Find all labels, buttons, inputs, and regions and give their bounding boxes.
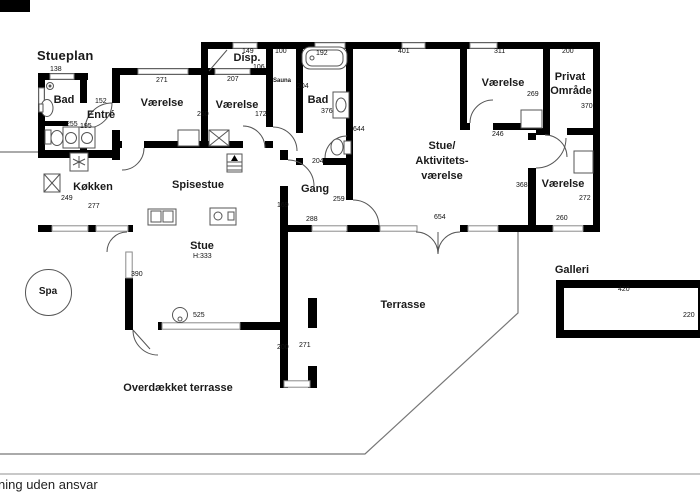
room-label-entre: Entré xyxy=(87,110,115,121)
room-label-stue: Stue xyxy=(190,241,214,252)
dim-label: 420 xyxy=(618,286,630,293)
dim-label: 149 xyxy=(242,48,254,55)
room-label-vaerelse-1: Værelse xyxy=(141,98,184,109)
room-label-terrasse: Terrasse xyxy=(380,300,425,311)
dim-label: 204 xyxy=(312,158,324,165)
dim-label: 259 xyxy=(333,196,345,203)
room-label-vaerelse-2: Værelse xyxy=(216,100,259,111)
dim-label: 106 xyxy=(253,64,265,71)
room-label-stueakt-line3: værelse xyxy=(421,171,463,182)
dim-label: 246 xyxy=(492,131,504,138)
dim-label: 138 xyxy=(50,66,62,73)
dim-label: 271 xyxy=(299,342,311,349)
dim-label: 390 xyxy=(131,271,143,278)
dim-label: 195 xyxy=(80,123,92,130)
dim-label: 272 xyxy=(579,195,591,202)
room-label-privat-line1: Privat xyxy=(555,72,586,83)
dim-label: 192 xyxy=(316,50,328,57)
room-label-koekken: Køkken xyxy=(73,182,113,193)
dim-label: 311 xyxy=(494,48,505,55)
wardrobe-icon xyxy=(209,130,229,146)
kitchen-sink-icon xyxy=(148,209,176,225)
dim-label: 288 xyxy=(306,216,318,223)
terrace-outline xyxy=(0,152,518,454)
corner-artifact xyxy=(0,0,30,12)
dim-label: 172 xyxy=(255,111,267,118)
dim-label: 169 xyxy=(277,202,289,209)
dim-label: 277 xyxy=(88,203,100,210)
dim-label: 200 xyxy=(277,344,289,351)
room-label-gang: Gang xyxy=(301,184,329,195)
room-label-privat-line2: Område xyxy=(550,86,592,97)
room-label-vaerelse-3: Værelse xyxy=(482,78,525,89)
dim-label: 204 xyxy=(297,83,309,90)
dim-label: 376 xyxy=(321,108,333,115)
freezer-icon xyxy=(70,153,88,171)
room-label-galleri: Galleri xyxy=(555,265,589,276)
floorplan-page: Stueplan Bad Entré Værelse Værelse Disp.… xyxy=(0,0,700,500)
wardrobe-icon xyxy=(521,110,542,128)
dim-label: 654 xyxy=(434,214,446,221)
room-label-sauna: Sauna xyxy=(273,78,291,84)
dim-label: 260 xyxy=(556,215,568,222)
dim-label: 249 xyxy=(61,195,73,202)
washer-icon xyxy=(79,127,95,148)
spa-tub-icon xyxy=(173,308,188,323)
room-label-spa: Spa xyxy=(39,287,57,297)
washer-icon xyxy=(63,127,79,148)
room-label-overdaekket-terrasse: Overdækket terrasse xyxy=(123,383,232,394)
dim-label: 271 xyxy=(156,77,168,84)
dim-label: 644 xyxy=(353,126,365,133)
dim-label: 152 xyxy=(95,98,107,105)
dim-label: 100 xyxy=(275,48,287,55)
fridge-icon xyxy=(44,174,60,192)
dim-label: 200 xyxy=(562,48,574,55)
dim-label: 220 xyxy=(683,312,695,319)
dim-label: 525 xyxy=(193,312,205,319)
dim-label: 255 xyxy=(66,121,78,128)
room-label-bad-1: Bad xyxy=(54,95,75,106)
stove-icon xyxy=(210,208,236,225)
page-title: Stueplan xyxy=(37,49,94,62)
room-label-bad-2: Bad xyxy=(308,95,329,106)
wardrobe-icon xyxy=(574,151,593,173)
wardrobe-icon xyxy=(178,130,199,146)
sink-icon xyxy=(333,92,349,118)
dim-label: 368 xyxy=(516,182,528,189)
loft-ladder-icon xyxy=(227,154,242,172)
room-label-vaerelse-4: Værelse xyxy=(542,179,585,190)
disclaimer-text: ning uden ansvar xyxy=(0,478,98,491)
room-label-stueakt-line2: Aktivitets- xyxy=(415,156,468,167)
toilet-icon xyxy=(331,139,351,155)
toilet-icon xyxy=(45,130,63,146)
dim-label: 370 xyxy=(581,103,593,110)
room-label-spisestue: Spisestue xyxy=(172,180,224,191)
dim-label: 401 xyxy=(398,48,410,55)
stue-height-label: H:333 xyxy=(193,253,212,260)
floorplan-drawing xyxy=(0,0,700,500)
dim-label: 260 xyxy=(197,111,209,118)
drain-icon xyxy=(47,83,54,90)
room-label-stueakt-line1: Stue/ xyxy=(429,141,456,152)
dim-label: 207 xyxy=(227,76,239,83)
dim-label: 269 xyxy=(527,91,539,98)
